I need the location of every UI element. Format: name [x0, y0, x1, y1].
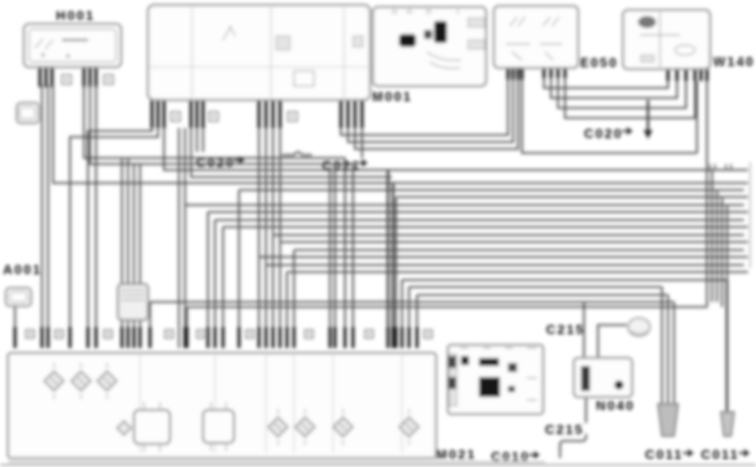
- svg-text:M021: M021: [436, 447, 477, 462]
- svg-text:C020: C020: [196, 155, 235, 170]
- svg-text:N040: N040: [596, 398, 635, 413]
- svg-text:C011: C011: [701, 447, 739, 462]
- svg-text:M001: M001: [372, 89, 413, 104]
- svg-text:C020: C020: [584, 126, 623, 141]
- svg-text:H001: H001: [56, 8, 95, 23]
- svg-text:E050: E050: [580, 55, 618, 70]
- svg-text:C215: C215: [545, 422, 584, 437]
- svg-text:C021: C021: [322, 158, 361, 173]
- svg-text:C010: C010: [491, 449, 530, 464]
- svg-text:C215: C215: [546, 322, 585, 337]
- svg-text:A001: A001: [3, 262, 42, 277]
- svg-text:C011: C011: [645, 447, 683, 462]
- svg-text:W140: W140: [713, 54, 755, 69]
